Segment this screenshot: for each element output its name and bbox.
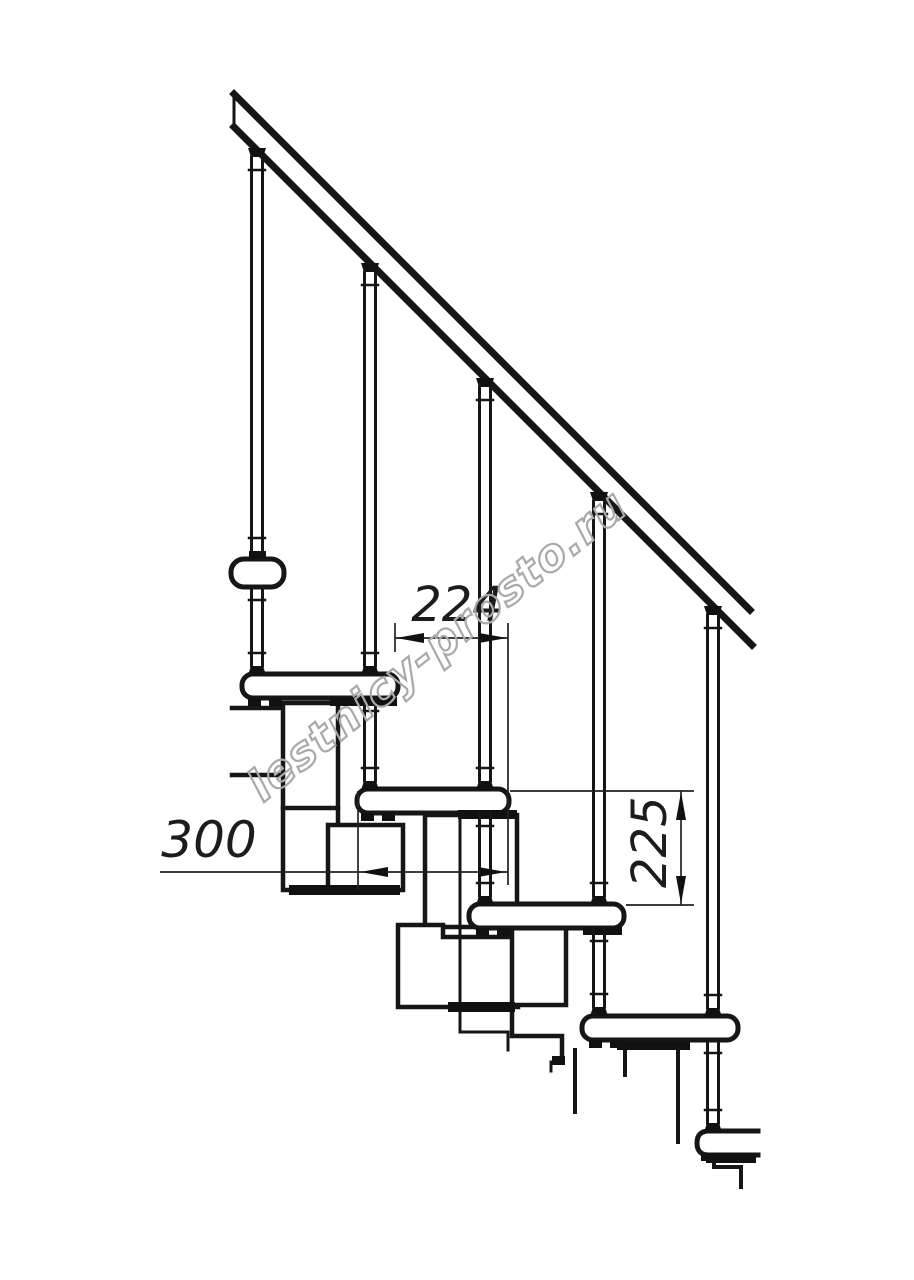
handrail-bottom-edge bbox=[234, 127, 752, 645]
dimension-rise-225: 225 bbox=[510, 791, 694, 905]
baluster bbox=[704, 606, 722, 1132]
baluster bbox=[590, 492, 608, 1016]
module-foot bbox=[552, 1056, 565, 1065]
staircase-side-view-drawing: 224 300 225 lestnicy-prosto.ru bbox=[0, 0, 914, 1280]
tread bbox=[469, 904, 624, 928]
dimension-label-depth: 300 bbox=[161, 811, 256, 869]
handrail bbox=[234, 94, 752, 645]
tread bbox=[357, 789, 509, 813]
module-base-plate bbox=[289, 885, 400, 895]
tread-bracket bbox=[231, 559, 284, 587]
tread bbox=[582, 1016, 738, 1040]
tread-bottom-cut bbox=[697, 1131, 758, 1155]
module-base-plate bbox=[448, 1002, 515, 1012]
floor-cut-line bbox=[714, 1163, 741, 1187]
watermark-text: lestnicy-prosto.ru bbox=[238, 480, 637, 812]
dimension-label-rise: 225 bbox=[622, 796, 678, 888]
technical-drawing-page: 224 300 225 lestnicy-prosto.ru bbox=[0, 0, 914, 1280]
baluster bbox=[248, 148, 266, 675]
